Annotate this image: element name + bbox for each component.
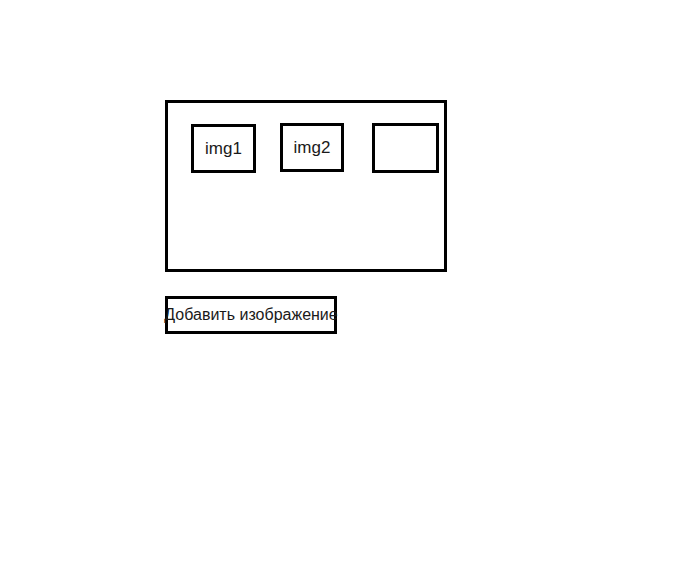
image-box-2: img2	[280, 123, 344, 172]
add-image-button[interactable]: Добавить изображение	[165, 296, 337, 334]
image-box-1: img1	[191, 124, 256, 173]
image-label-1: img1	[205, 139, 242, 159]
image-label-2: img2	[294, 138, 331, 158]
image-box-3-empty	[372, 123, 439, 173]
image-gallery: img1 img2	[165, 100, 447, 272]
page: img1 img2 Добавить изображение	[0, 0, 696, 564]
